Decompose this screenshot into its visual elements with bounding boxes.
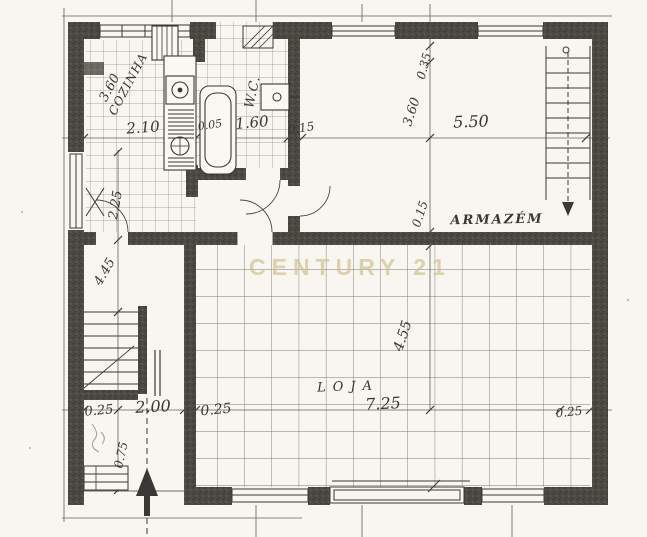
loja-floor-grid (196, 245, 590, 487)
dim-right-offset: 0.25 (555, 405, 583, 420)
floor-plan: CENTURY 21 COZINHA W.C. ARMAZÉM LOJA 3.6… (0, 0, 647, 537)
staircase-right (546, 46, 590, 216)
dim-cozinha-width: 2.10 (126, 119, 160, 136)
entrance-arrow-icon (136, 398, 158, 535)
entrance-steps (84, 466, 128, 490)
dim-gap-kitchen-wc: 0.05 (197, 118, 223, 132)
washbasin-icon (261, 84, 289, 110)
dim-wc-width: 1.60 (235, 114, 270, 132)
staircase-left (84, 312, 160, 396)
century21-watermark: CENTURY 21 (249, 254, 451, 281)
room-label-armazem: ARMAZÉM (450, 213, 543, 228)
dim-entry-wall-right: 0.25 (200, 402, 232, 419)
dim-loja-width: 7.25 (365, 395, 401, 413)
dim-wall-wc-armazem: 0.15 (287, 120, 315, 136)
dim-entry-width: 2.00 (135, 398, 171, 416)
dim-entry-wall-left: 0.25 (84, 403, 114, 418)
dim-armazem-width: 5.50 (453, 113, 489, 130)
room-label-loja: LOJA (317, 379, 379, 394)
